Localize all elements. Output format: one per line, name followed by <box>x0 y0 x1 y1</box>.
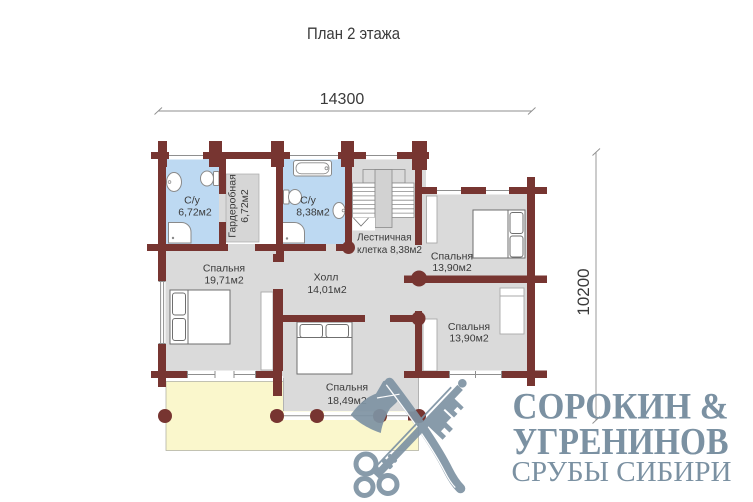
svg-text:13,90м2: 13,90м2 <box>449 333 488 345</box>
svg-text:Спальня: Спальня <box>203 263 245 275</box>
svg-text:С/у: С/у <box>300 195 317 207</box>
svg-text:Спальня: Спальня <box>448 321 490 333</box>
svg-text:14300: 14300 <box>320 91 365 108</box>
svg-text:6,72м2: 6,72м2 <box>239 189 251 223</box>
svg-text:Спальня: Спальня <box>431 251 473 263</box>
svg-text:План 2 этажа: План 2 этажа <box>307 25 401 43</box>
svg-text:10200: 10200 <box>574 268 593 315</box>
svg-text:клетка 8,38м2: клетка 8,38м2 <box>357 245 422 256</box>
svg-text:Гардеробная: Гардеробная <box>227 174 239 238</box>
svg-text:13,90м2: 13,90м2 <box>432 262 471 274</box>
svg-text:8,38м2: 8,38м2 <box>296 207 330 219</box>
svg-text:Спальня: Спальня <box>326 382 368 394</box>
svg-text:СРУБЫ СИБИРИ: СРУБЫ СИБИРИ <box>512 456 732 488</box>
svg-text:Лестничная: Лестничная <box>357 233 412 244</box>
svg-text:6,72м2: 6,72м2 <box>178 207 212 219</box>
svg-text:19,71м2: 19,71м2 <box>204 275 243 287</box>
svg-text:14,01м2: 14,01м2 <box>307 284 346 296</box>
svg-text:Холл: Холл <box>314 272 339 284</box>
svg-text:С/у: С/у <box>184 195 201 207</box>
